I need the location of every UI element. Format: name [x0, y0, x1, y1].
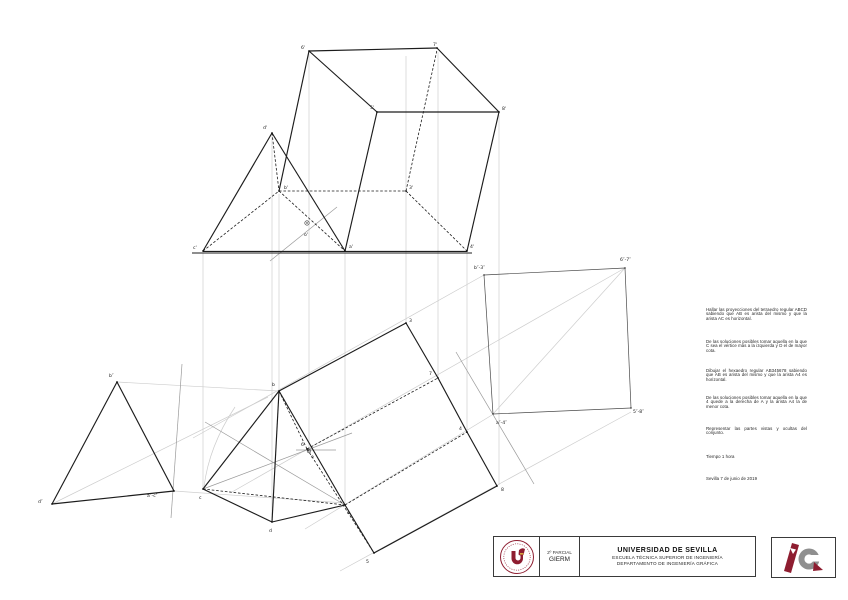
university-cell: UNIVERSIDAD DE SEVILLA ESCUELA TÉCNICA S…: [580, 537, 755, 576]
ig-logo-box: [771, 537, 836, 578]
visible-edge: [272, 133, 345, 251]
vertex-dot: [373, 552, 375, 554]
center-mark: [306, 222, 307, 223]
auxiliary-square-edge: [484, 275, 493, 414]
problem-paragraph: Dibujar el hexaedro regular AB345678 sab…: [706, 369, 807, 382]
vertex-label: b': [284, 185, 288, 191]
exam-sheet: d'b'c'a'o'6'7'5'8'3'4'bcda6o37485b″-3″6″…: [0, 0, 848, 600]
vertex-label: 4': [470, 244, 474, 250]
vertex-dot: [405, 322, 407, 324]
hidden-edge: [345, 432, 467, 505]
vertex-dot: [308, 50, 310, 52]
university-name: UNIVERSIDAD DE SEVILLA: [617, 547, 717, 554]
vertex-dot: [271, 521, 273, 523]
vertex-dot: [202, 250, 204, 252]
vertex-dot: [405, 190, 407, 192]
visible-edge: [374, 486, 497, 553]
vertex-label: 6': [301, 45, 305, 51]
vertex-label: o: [311, 455, 314, 460]
visible-edge: [272, 505, 345, 522]
vertex-label: d': [263, 125, 267, 131]
hidden-edge: [279, 191, 345, 251]
vertex-dot: [483, 274, 484, 275]
vertex-dot: [173, 490, 175, 492]
vertex-label: a″-4″: [496, 420, 507, 426]
department-name: DEPARTAMENTO DE INGENIERÍA GRÁFICA: [617, 561, 718, 566]
visible-edge: [438, 378, 467, 432]
degree-label: GIERM: [549, 556, 570, 563]
visible-edge: [279, 51, 309, 191]
vertex-label: a': [349, 244, 353, 250]
visible-edge: [279, 323, 406, 391]
vertex-dot: [202, 488, 204, 490]
vertex-dot: [496, 485, 498, 487]
visible-edge: [117, 382, 174, 491]
center-mark: [308, 450, 309, 451]
ingenieria-grafica-logo: [778, 540, 830, 576]
title-block: 2º PARCIAL GIERM UNIVERSIDAD DE SEVILLA …: [493, 536, 756, 577]
construction-line: [232, 268, 625, 492]
exam-cell: 2º PARCIAL GIERM: [540, 537, 580, 576]
vertex-label: 3': [409, 185, 413, 191]
school-name: ESCUELA TÉCNICA SUPERIOR DE INGENIERÍA: [612, 555, 723, 560]
construction-line: [193, 275, 484, 438]
vertex-label: 8': [502, 106, 506, 112]
problem-paragraph: De las soluciones posibles tomar aquella…: [706, 340, 807, 353]
auxiliary-square-edge: [625, 268, 631, 408]
visible-edge: [467, 112, 499, 251]
vertex-dot: [492, 413, 493, 414]
visible-edge: [279, 391, 345, 505]
vertex-label: 5: [366, 559, 369, 565]
visible-edge: [272, 391, 279, 522]
construction-line: [204, 407, 235, 487]
vertex-label: c: [199, 496, 202, 501]
visible-edge: [345, 112, 377, 251]
visible-edge: [467, 432, 497, 486]
vertex-dot: [271, 132, 273, 134]
seal-cell: [494, 537, 540, 576]
visible-edge: [437, 48, 499, 112]
vertex-label: 7': [433, 42, 437, 48]
problem-paragraph: De las soluciones posibles tomar aquella…: [706, 396, 807, 409]
visible-edge: [203, 133, 272, 251]
vertex-labels: d'b'c'a'o'6'7'5'8'3'4'bcda6o37485b″-3″6″…: [38, 42, 644, 565]
vertex-label: 3: [409, 318, 412, 324]
date-line: Sevilla 7 de junio de 2019: [706, 477, 807, 481]
vertex-dot: [624, 267, 625, 268]
vertex-label: 5': [370, 105, 374, 111]
vertex-label: 6″-7″: [620, 257, 631, 263]
vertex-dots: [51, 47, 632, 554]
construction-line: [493, 268, 625, 414]
vertex-dot: [344, 504, 346, 506]
visible-edge: [406, 323, 438, 378]
vertex-label: d: [269, 528, 272, 534]
ig-logo-i: [784, 543, 799, 573]
vertex-dot: [437, 377, 439, 379]
auxiliary-construction-lines: [171, 207, 534, 518]
vertex-label: 6: [301, 442, 304, 448]
vertex-dot: [376, 111, 378, 113]
hidden-edges: [203, 50, 467, 553]
construction-lines: [52, 52, 631, 571]
vertex-label: a″-c″: [147, 493, 158, 499]
vertex-dot: [466, 431, 468, 433]
visible-edge: [309, 48, 437, 51]
vertex-dot: [344, 250, 346, 252]
auxiliary-line: [171, 364, 182, 518]
seal-ring-text: [503, 543, 529, 569]
auxiliary-line: [456, 352, 534, 484]
auxiliary-square-edge: [493, 408, 631, 414]
universidad-de-sevilla-seal: [498, 538, 536, 576]
hidden-edge: [406, 191, 467, 251]
vertex-dot: [278, 390, 280, 392]
vertex-label: o': [304, 232, 308, 238]
hidden-edge: [307, 378, 438, 449]
technical-drawing: d'b'c'a'o'6'7'5'8'3'4'bcda6o37485b″-3″6″…: [0, 0, 848, 600]
ig-logo-g-cut: [809, 555, 822, 562]
visible-edge: [203, 391, 279, 489]
vertex-label: b″-3″: [474, 265, 485, 271]
auxiliary-square-edge: [484, 268, 625, 275]
visible-edges: [52, 48, 499, 553]
vertex-label: 5″-8″: [633, 409, 644, 415]
construction-line: [52, 397, 268, 504]
visible-edge: [52, 382, 117, 504]
vertex-label: a: [347, 511, 350, 516]
problem-paragraph: Representar las partes vistas y ocultas …: [706, 427, 807, 436]
visible-edge: [203, 489, 272, 522]
construction-line: [305, 415, 492, 529]
vertex-label: 8: [501, 487, 504, 493]
problem-paragraph: Hallar las proyecciones del tetraedro re…: [706, 308, 807, 321]
vertex-label: d″: [38, 499, 43, 505]
time-allowed: Tiempo 1 hora: [706, 455, 807, 459]
vertex-label: c': [193, 245, 197, 251]
center-marks: [305, 221, 311, 453]
vertex-label: b: [272, 382, 275, 388]
hidden-edge: [406, 50, 437, 191]
hidden-edge: [279, 391, 307, 449]
construction-line: [117, 382, 279, 391]
vertex-dot: [278, 190, 280, 192]
exam-label: 2º PARCIAL: [547, 550, 572, 555]
vertex-dot: [466, 250, 468, 252]
vertex-dot: [630, 407, 631, 408]
seal-gold-accent: [520, 553, 523, 555]
auxiliary-square-view: [484, 268, 631, 414]
vertex-label: 4: [459, 426, 462, 432]
vertex-label: 7: [429, 371, 432, 377]
hidden-edge: [203, 191, 279, 251]
vertex-dot: [498, 111, 500, 113]
vertex-dot: [51, 503, 53, 505]
vertex-label: b″: [109, 373, 114, 379]
vertex-dot: [116, 381, 118, 383]
visible-edge: [309, 51, 377, 112]
